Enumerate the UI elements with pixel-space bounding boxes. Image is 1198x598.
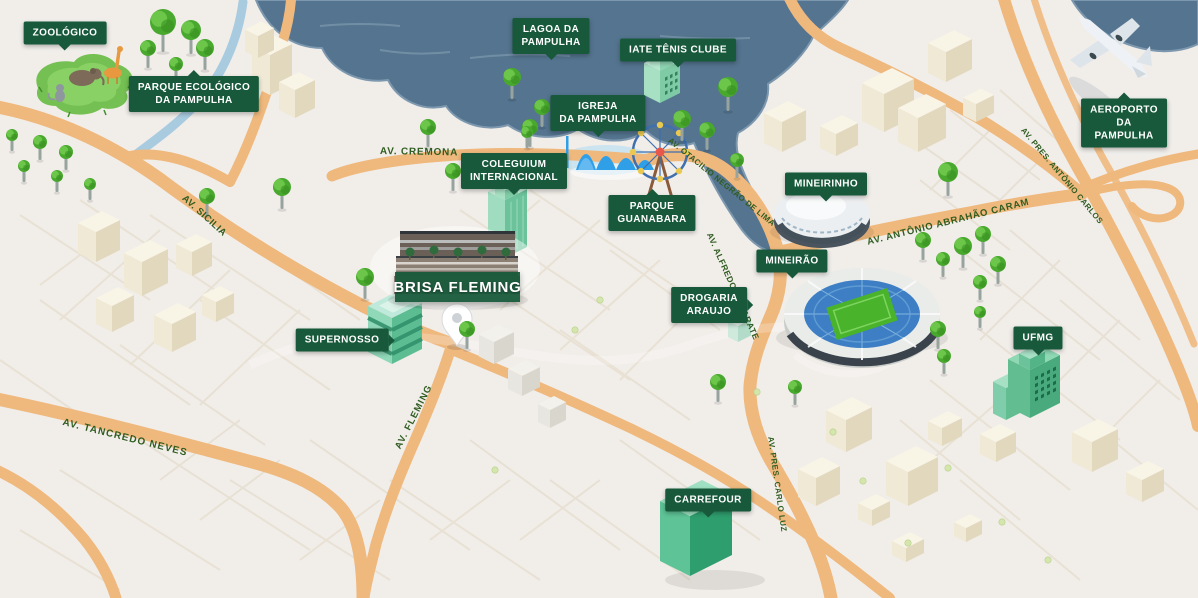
landmark-label-aeroporto-da-pampulha: AEROPORTO DA PAMPULHA xyxy=(1081,99,1167,148)
building xyxy=(798,457,840,506)
building xyxy=(826,397,872,452)
building xyxy=(928,30,972,82)
ufmg-building xyxy=(993,344,1060,420)
road-label-av-cremona: AV. CREMONA xyxy=(380,146,458,158)
bush-icon xyxy=(860,478,866,484)
building xyxy=(479,325,514,365)
tree-icon xyxy=(420,119,436,150)
landmark-label-iate-tenis-clube: IATE TÊNIS CLUBE xyxy=(620,39,736,62)
landmark-label-ufmg: UFMG xyxy=(1013,327,1062,350)
building xyxy=(963,89,994,123)
tree-icon xyxy=(954,237,972,271)
building xyxy=(1126,461,1164,502)
tree-icon xyxy=(84,178,96,203)
bush-icon xyxy=(492,467,498,473)
landmark-label-coleguium-internacional: COLEGUIUM INTERNACIONAL xyxy=(461,153,567,189)
project-name: BRISA FLEMING xyxy=(393,279,521,296)
building xyxy=(858,494,890,526)
building xyxy=(538,396,566,428)
building xyxy=(96,287,134,332)
landmark-label-lagoa-da-pampulha: LAGOA DA PAMPULHA xyxy=(512,18,589,54)
tree-icon xyxy=(273,178,291,212)
building xyxy=(928,411,962,446)
bush-icon xyxy=(905,540,911,546)
bush-icon xyxy=(597,297,603,303)
bush-icon xyxy=(1045,557,1051,563)
tree-icon xyxy=(140,40,156,71)
tree-icon xyxy=(710,374,726,405)
tree-icon xyxy=(33,135,47,163)
building xyxy=(892,532,924,562)
landmark-label-igreja-da-pampulha: IGREJA DA PAMPULHA xyxy=(550,95,645,131)
landmark-label-drogaria-araujo: DROGARIA ARAUJO xyxy=(671,287,747,323)
brisa-fleming-banner: BRISA FLEMING xyxy=(395,272,520,302)
tree-icon xyxy=(59,145,73,173)
tree-icon xyxy=(975,226,991,257)
building xyxy=(886,446,938,506)
tree-icon xyxy=(6,129,18,154)
landmark-label-mineirao: MINEIRÃO xyxy=(756,250,827,273)
tree-icon xyxy=(196,39,214,73)
landmark-label-zoologico: ZOOLÓGICO xyxy=(24,22,107,45)
landmark-label-parque-guanabara: PARQUE GUANABARA xyxy=(608,195,695,231)
tree-icon xyxy=(973,275,987,303)
bush-icon xyxy=(945,465,951,471)
building xyxy=(820,115,858,156)
tree-icon xyxy=(937,349,951,377)
bush-icon xyxy=(999,519,1005,525)
building xyxy=(980,424,1016,462)
building xyxy=(176,234,212,276)
building xyxy=(78,211,120,262)
tree-icon xyxy=(936,252,950,280)
landmark-label-supernosso: SUPERNOSSO xyxy=(296,329,389,352)
tree-icon xyxy=(974,306,986,331)
tree-icon xyxy=(445,163,461,194)
zoo-icon xyxy=(36,46,133,117)
bush-icon xyxy=(830,429,836,435)
building xyxy=(764,101,806,152)
pampulha-map: AV. CREMONA AV. SICILIA AV. TANCREDO NEV… xyxy=(0,0,1198,598)
building xyxy=(1072,419,1118,472)
building xyxy=(154,303,196,352)
tree-icon xyxy=(990,256,1006,287)
tree-icon xyxy=(788,380,802,408)
building xyxy=(124,240,168,296)
tree-icon xyxy=(18,160,30,185)
tree-icon xyxy=(51,170,63,195)
landmark-label-parque-ecologico: PARQUE ECOLÓGICO DA PAMPULHA xyxy=(129,76,259,112)
landmark-label-carrefour: CARREFOUR xyxy=(665,489,751,512)
building xyxy=(954,514,982,542)
bush-icon xyxy=(754,389,760,395)
bush-icon xyxy=(572,327,578,333)
mineirao-stadium-icon xyxy=(776,268,948,368)
landmark-label-mineirinho: MINEIRINHO xyxy=(785,173,867,196)
tree-icon xyxy=(915,232,931,263)
